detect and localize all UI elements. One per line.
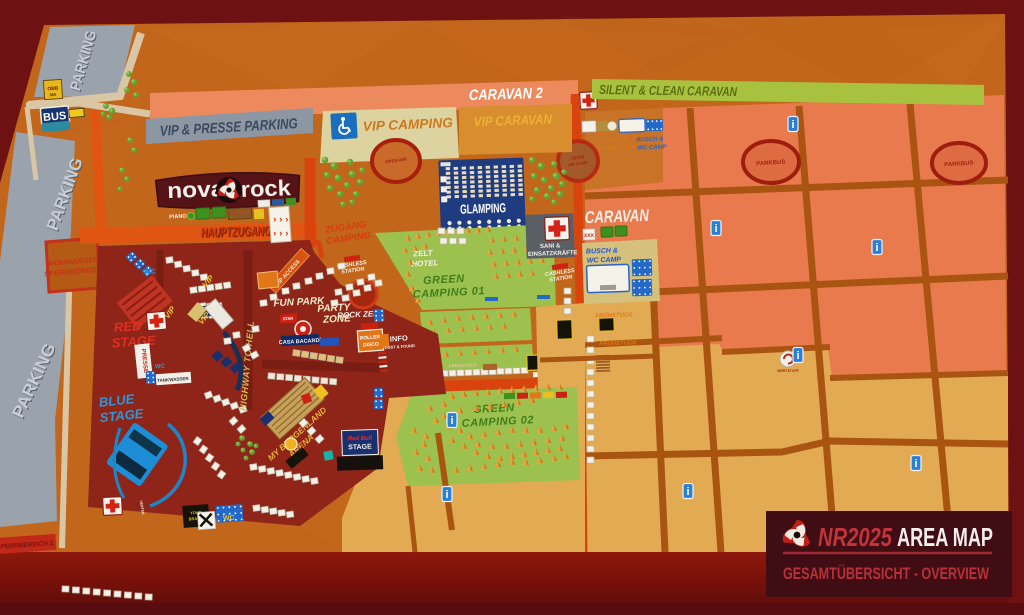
svg-text:PIANO: PIANO <box>169 214 187 221</box>
svg-text:DISCO: DISCO <box>363 341 379 348</box>
svg-text:STAR: STAR <box>283 316 294 322</box>
svg-text:VIP CARAVAN: VIP CARAVAN <box>474 112 553 130</box>
svg-text:HAUPTZUGANG: HAUPTZUGANG <box>201 223 272 240</box>
svg-text:GESAMTÜBERSICHT - OVERVIEW: GESAMTÜBERSICHT - OVERVIEW <box>783 564 990 583</box>
svg-text:Red Bull: Red Bull <box>348 436 373 443</box>
svg-text:CARAVAN: CARAVAN <box>584 206 649 227</box>
svg-text:KASSA: KASSA <box>232 210 249 216</box>
svg-text:HOTEL: HOTEL <box>411 258 439 268</box>
svg-text:rock: rock <box>240 175 292 202</box>
svg-text:FRÜHSTÜCK: FRÜHSTÜCK <box>599 143 637 151</box>
svg-text:i: i <box>796 350 799 362</box>
svg-text:INFO: INFO <box>390 333 409 343</box>
svg-text:GREEN: GREEN <box>473 402 516 416</box>
svg-text:FRÜHSTÜCK: FRÜHSTÜCK <box>599 339 637 347</box>
svg-text:BUSCH &: BUSCH & <box>636 137 664 144</box>
svg-text:AREA MAP: AREA MAP <box>897 522 993 552</box>
svg-text:CARAVAN 2: CARAVAN 2 <box>469 85 544 104</box>
svg-text:XXX: XXX <box>584 233 595 239</box>
svg-text:BUSCH &: BUSCH & <box>586 247 618 255</box>
svg-text:FOOD &: FOOD & <box>604 137 628 144</box>
svg-text:WERTSTOFF: WERTSTOFF <box>777 369 800 373</box>
svg-text:GLAMPING: GLAMPING <box>460 200 506 217</box>
svg-text:i: i <box>875 242 878 254</box>
svg-text:WC CAMP: WC CAMP <box>587 256 622 264</box>
svg-text:GREEN: GREEN <box>423 273 466 287</box>
svg-text:NR2025: NR2025 <box>818 522 892 552</box>
svg-text:WC: WC <box>223 515 235 523</box>
svg-text:STAGE: STAGE <box>348 444 372 452</box>
svg-text:RED: RED <box>113 318 142 335</box>
svg-text:WC: WC <box>144 269 156 277</box>
svg-text:i: i <box>914 458 917 470</box>
svg-text:300: 300 <box>49 92 57 98</box>
svg-text:i: i <box>714 223 717 235</box>
svg-text:i: i <box>791 119 794 131</box>
svg-text:i: i <box>450 415 453 427</box>
svg-text:i: i <box>686 486 689 498</box>
svg-text:SANI &: SANI & <box>540 243 561 250</box>
svg-text:WC CAMP: WC CAMP <box>637 144 668 151</box>
svg-text:FRÜHSTÜCK: FRÜHSTÜCK <box>449 361 478 368</box>
svg-text:SILENT & CLEAN CARAVAN: SILENT & CLEAN CARAVAN <box>599 82 738 99</box>
svg-text:i: i <box>445 489 448 501</box>
svg-text:WC: WC <box>155 364 166 371</box>
